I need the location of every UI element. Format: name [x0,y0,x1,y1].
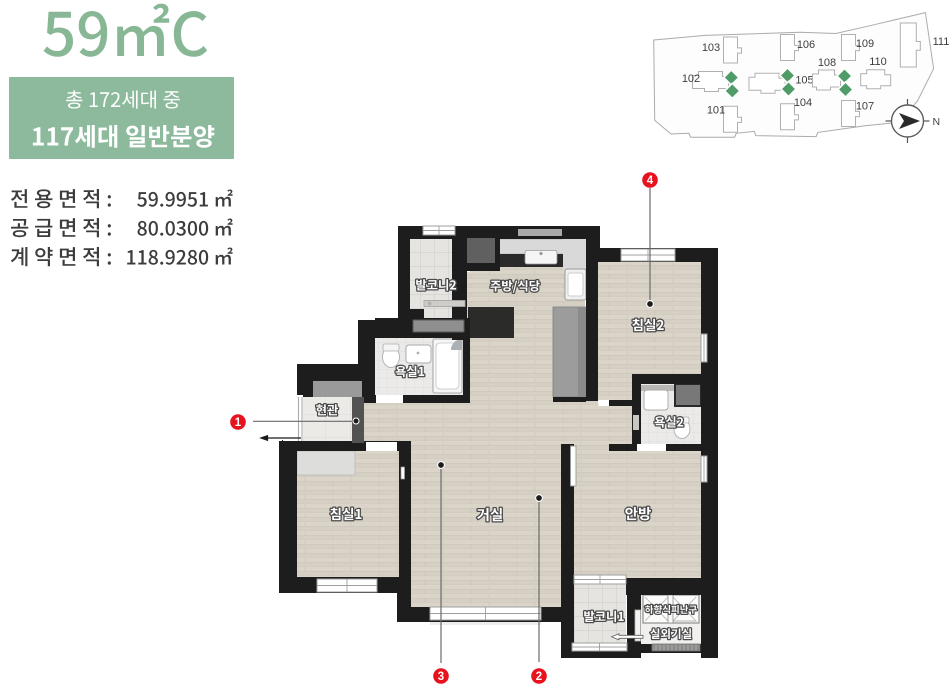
svg-text:106: 106 [797,39,815,51]
svg-text:102: 102 [682,73,700,85]
svg-text:101: 101 [707,105,725,117]
svg-text:3: 3 [438,671,444,683]
svg-text:108: 108 [818,57,836,69]
svg-text:1: 1 [235,417,242,429]
svg-text:2: 2 [536,671,542,683]
svg-text:4: 4 [647,175,654,187]
svg-text:103: 103 [702,42,720,54]
svg-text:111: 111 [933,36,950,48]
svg-text:N: N [933,116,941,128]
svg-text:110: 110 [869,56,887,68]
svg-text:109: 109 [856,38,874,50]
svg-text:105: 105 [795,75,813,87]
svg-text:104: 104 [794,97,812,109]
svg-text:107: 107 [856,101,874,113]
